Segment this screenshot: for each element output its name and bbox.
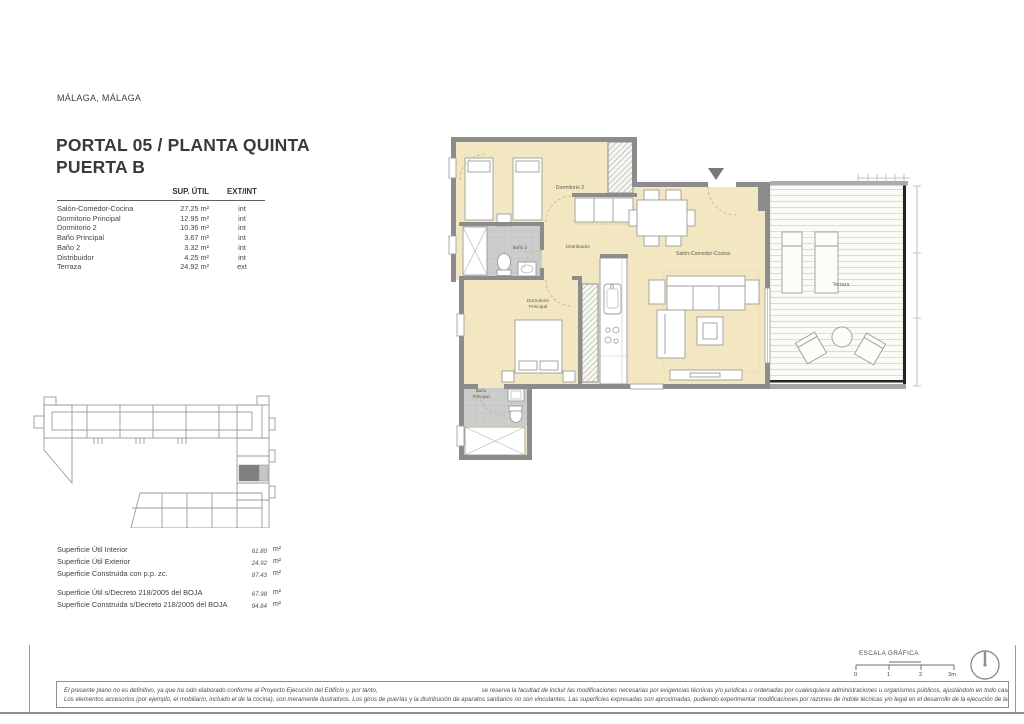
scale-tick-2: 2 [919, 672, 922, 678]
scale-tick-0: 0 [854, 672, 857, 678]
disclaimer-line-2: Los elementos accesorios (por ejemplo, e… [64, 695, 1001, 705]
table-row: Terraza 24.92 m² ext [57, 262, 265, 272]
shower-icon [463, 227, 487, 275]
room-label-bano2: Baño 2 [513, 245, 528, 250]
hall-closet-icon [575, 198, 633, 222]
scale-bar-graphic [853, 660, 963, 672]
sheet-frame-left [29, 645, 30, 712]
totals-group-1: Superficie Útil Interior 61.80 m² Superf… [57, 545, 289, 581]
coffee-table-icon [697, 317, 723, 345]
room-label-salon: Salón-Comedor-Cocina [676, 251, 730, 257]
toilet-icon [497, 254, 511, 276]
page-title-line1: PORTAL 05 / PLANTA QUINTA [56, 134, 310, 156]
page-title-line2: PUERTA B [56, 156, 310, 178]
room-label-distribuidor: Distribuidor [566, 244, 591, 250]
shower-icon [465, 427, 525, 455]
areas-table-header: SUP. ÚTIL EXT/INT [57, 187, 265, 201]
table-row: Distribuidor 4.25 m² int [57, 253, 265, 263]
surface-totals: Superficie Útil Interior 61.80 m² Superf… [57, 545, 289, 612]
room-label-bano-principal: Baño [476, 388, 487, 393]
sink-icon [508, 389, 524, 401]
building-key-plan [32, 388, 292, 528]
room-label-dormitorio2: Dormitorio 2 [556, 185, 584, 191]
sheet-frame-right [1015, 645, 1016, 712]
total-row: Superficie Construida con p.p. zc. 87.43… [57, 569, 289, 581]
wardrobe-icon [608, 142, 633, 193]
page-title: PORTAL 05 / PLANTA QUINTA PUERTA B [56, 134, 310, 178]
north-indicator-icon [966, 646, 1004, 684]
areas-table: SUP. ÚTIL EXT/INT Salón-Comedor-Cocina 2… [57, 187, 265, 272]
areas-table-body: Salón-Comedor-Cocina 27.25 m² int Dormit… [57, 201, 265, 272]
scale-tick-3: 3m [948, 672, 956, 678]
highlighted-unit [239, 465, 259, 481]
table-row: Salón-Comedor-Cocina 27.25 m² int [57, 204, 265, 214]
tv-console-icon [670, 370, 742, 380]
entrance-marker-icon [708, 168, 724, 180]
header-sup-util: SUP. ÚTIL [153, 187, 219, 196]
room-label-dormitorio-principal: Principal [529, 304, 547, 310]
room-label-bano-principal: Principal [473, 394, 490, 399]
header-spacer [57, 187, 153, 196]
disclaimer-line-1: El presente plano no es definitivo, ya q… [64, 686, 1001, 696]
table-row: Dormitorio 2 10.36 m² int [57, 223, 265, 233]
room-label-terraza: Terraza [833, 282, 850, 288]
highlighted-unit-secondary [259, 465, 268, 481]
header-ext-int: EXT/INT [219, 187, 265, 196]
kitchen-counter-icon [600, 258, 627, 384]
totals-group-2: Superficie Útil s/Decreto 218/2005 del B… [57, 588, 289, 612]
scale-label: ESCALA GRÁFICA [859, 650, 969, 657]
total-row: Superficie Útil s/Decreto 218/2005 del B… [57, 588, 289, 600]
table-row: Dormitorio Principal 12.95 m² int [57, 214, 265, 224]
scale-tick-1: 1 [887, 672, 890, 678]
table-row: Baño Principal 3.67 m² int [57, 233, 265, 243]
sheet-frame-bottom [0, 712, 1024, 714]
patio-table-icon [832, 327, 852, 347]
room-label-dormitorio-principal: Dormitorio [527, 298, 549, 304]
total-row: Superficie Útil Interior 61.80 m² [57, 545, 289, 557]
total-row: Superficie Construida s/Decreto 218/2005… [57, 600, 289, 612]
sink-icon [518, 262, 536, 276]
location-label: MÁLAGA, MÁLAGA [57, 93, 141, 103]
floor-plan: Dormitorio 2 Baño 2 Distribuidor Dormito… [420, 118, 940, 478]
footer-disclaimer: El presente plano no es definitivo, ya q… [56, 681, 1009, 708]
wardrobe-icon [582, 284, 598, 382]
total-row: Superficie Útil Exterior 24.92 m² [57, 557, 289, 569]
scale-bar: ESCALA GRÁFICA 0 1 2 3m [853, 650, 969, 684]
table-row: Baño 2 3.32 m² int [57, 243, 265, 253]
